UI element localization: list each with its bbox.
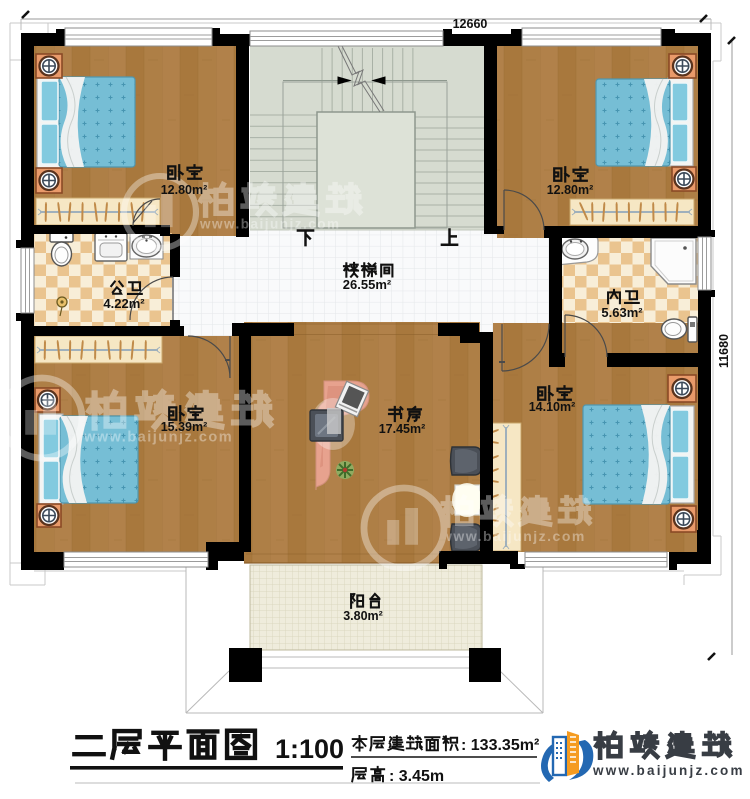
svg-text:14.10m²: 14.10m² (529, 400, 576, 414)
svg-text:15.39m²: 15.39m² (161, 420, 208, 434)
svg-text:17.45m²: 17.45m² (379, 422, 426, 436)
svg-text:: 3.45m: : 3.45m (389, 768, 444, 785)
svg-text:www.baijunjz.com: www.baijunjz.com (592, 763, 745, 778)
svg-text:12660: 12660 (453, 17, 488, 31)
svg-text:www.baijunjz.com: www.baijunjz.com (440, 528, 586, 544)
svg-text:: 133.35m²: : 133.35m² (461, 737, 539, 754)
svg-text:12.80m²: 12.80m² (161, 183, 208, 197)
svg-text:11680: 11680 (717, 334, 731, 368)
svg-text:www.baijunjz.com: www.baijunjz.com (83, 429, 233, 445)
svg-text:4.22m²: 4.22m² (103, 296, 145, 311)
svg-text:5.63m²: 5.63m² (601, 305, 643, 320)
svg-text:www.baijunjz.com: www.baijunjz.com (199, 216, 341, 231)
svg-text:26.55m²: 26.55m² (343, 277, 392, 292)
svg-text:12.80m²: 12.80m² (547, 183, 594, 197)
svg-text:3.80m²: 3.80m² (343, 609, 383, 623)
svg-text:1:100: 1:100 (275, 734, 344, 764)
